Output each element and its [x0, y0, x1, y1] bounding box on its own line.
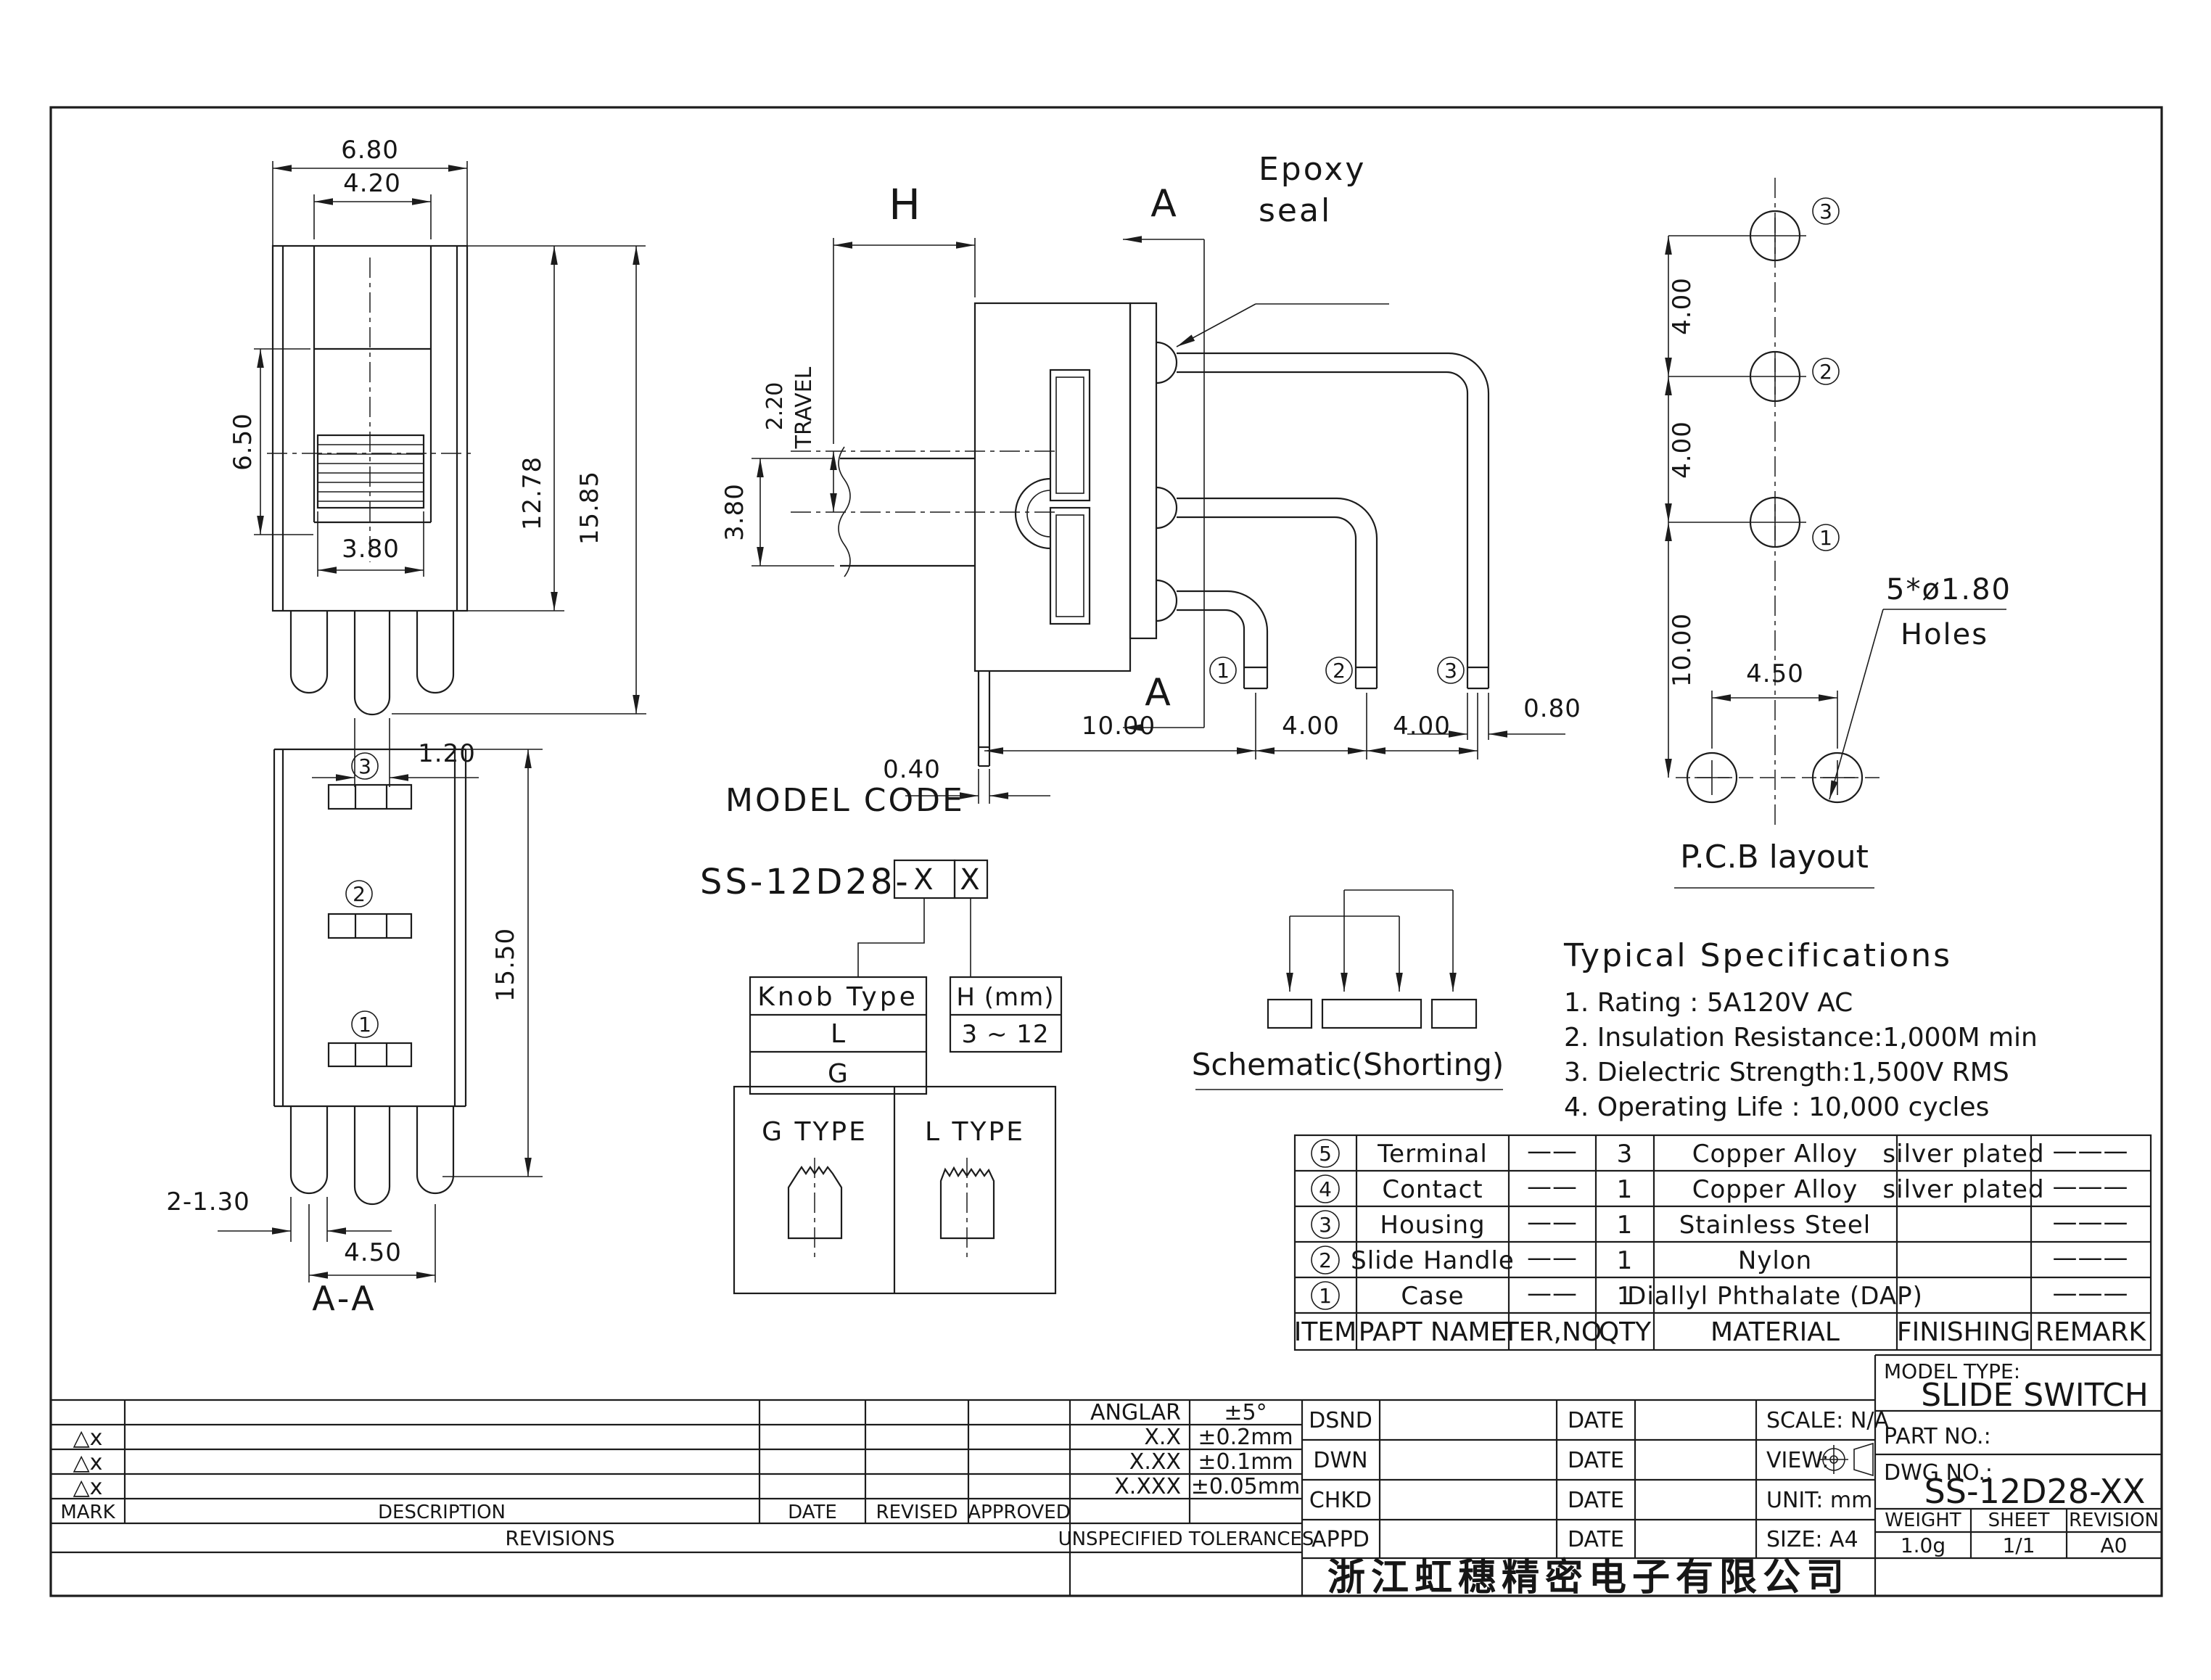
- unit-value: UNIT: mm: [1766, 1488, 1872, 1513]
- date-label-1: DATE: [1568, 1408, 1624, 1433]
- dim-side-h: H: [889, 180, 921, 229]
- bom-name-3: Housing: [1380, 1211, 1485, 1240]
- bom-item-3: 3: [1319, 1213, 1332, 1237]
- model-type-value: SLIDE SWITCH: [1921, 1377, 2149, 1414]
- specs-block: Typical Specifications 1. Rating : 5A120…: [1563, 937, 2038, 1122]
- view-label: VIEW:: [1766, 1448, 1829, 1473]
- bom-ter-3: ——: [1527, 1208, 1578, 1237]
- rev-header-date: DATE: [788, 1502, 837, 1523]
- bom-mat-1: Diallyl Phthalate (DAP): [1627, 1282, 1923, 1311]
- role-dwn: DWN: [1313, 1448, 1367, 1473]
- dim-sec-pitch: 4.50: [344, 1238, 402, 1267]
- spec-item-4: 4. Operating Life : 10,000 cycles: [1564, 1092, 1989, 1122]
- side-plate: [1130, 303, 1156, 638]
- date-label-3: DATE: [1568, 1488, 1624, 1513]
- h-table-header: H (mm): [956, 983, 1054, 1012]
- balloon-terminal-2: 2: [1333, 659, 1346, 683]
- bom-item-1: 1: [1319, 1284, 1332, 1308]
- model-code-title: MODEL CODE: [725, 782, 965, 819]
- dim-side-shaft: 3.80: [720, 483, 749, 541]
- role-appd: APPD: [1312, 1527, 1370, 1552]
- dim-side-travel: 2.20: [762, 382, 788, 431]
- side-view: H 2.20 TRAVEL 3.80 A A Epoxy seal 0.40 1…: [720, 151, 1581, 804]
- bom-rem-3: ———: [2053, 1208, 2129, 1237]
- tol-value-xxxx: ±0.05mm: [1191, 1474, 1300, 1499]
- tol-value-xx: ±0.2mm: [1198, 1425, 1293, 1450]
- bom-rem-4: ———: [2053, 1172, 2129, 1201]
- bom-name-1: Case: [1401, 1282, 1464, 1311]
- dim-pcb-pitch2: 4.00: [1668, 421, 1697, 479]
- tol-value-anglar: ±5°: [1224, 1400, 1267, 1425]
- bom-mat-5: Copper Alloy: [1692, 1140, 1858, 1169]
- dim-front-knob-height: 6.50: [228, 413, 258, 471]
- bom-name-4: Contact: [1382, 1175, 1483, 1204]
- bom-ter-2: ——: [1527, 1243, 1578, 1272]
- bom-mat-2: Nylon: [1738, 1246, 1812, 1275]
- dim-side-offset: 10.00: [1082, 712, 1156, 741]
- balloon-sec-3: 3: [358, 754, 371, 778]
- rev-header-description: DESCRIPTION: [378, 1502, 506, 1523]
- dim-front-body-height: 12.78: [518, 456, 547, 530]
- drawing-canvas: 6.80 4.20 6.50 3.80 12.78 15.85 1.20: [0, 0, 2211, 1680]
- bom-name-5: Terminal: [1377, 1140, 1488, 1169]
- schematic-caption: Schematic(Shorting): [1192, 1047, 1504, 1082]
- tol-label-anglar: ANGLAR: [1090, 1400, 1181, 1425]
- bom-mat-3: Stainless Steel: [1679, 1211, 1872, 1240]
- bom-qty-3: 1: [1617, 1211, 1634, 1240]
- dim-front-outer-width: 6.80: [341, 136, 399, 165]
- date-label-2: DATE: [1568, 1448, 1624, 1473]
- tol-value-xxx: ±0.1mm: [1198, 1449, 1293, 1475]
- section-a-bottom: A: [1145, 671, 1171, 715]
- schematic-figure: Schematic(Shorting): [1192, 890, 1504, 1090]
- balloon-sec-1: 1: [358, 1013, 371, 1037]
- drawing-sheet: 6.80 4.20 6.50 3.80 12.78 15.85 1.20: [0, 0, 2211, 1680]
- spec-item-1: 1. Rating : 5A120V AC: [1564, 988, 1853, 1018]
- label-travel: TRAVEL: [791, 366, 817, 449]
- dim-front-knob-width: 3.80: [342, 535, 400, 564]
- dim-side-pitch1: 4.00: [1282, 712, 1340, 741]
- bom-header-ter: TER,NO: [1502, 1317, 1602, 1347]
- model-code-x1: X: [913, 863, 934, 897]
- size-value: SIZE: A4: [1766, 1527, 1858, 1552]
- bom-table: 5 Terminal —— 3 Copper Alloy silver plat…: [1294, 1135, 2151, 1350]
- scale-value: SCALE: N/A: [1766, 1408, 1889, 1433]
- bom-ter-1: ——: [1527, 1279, 1578, 1308]
- bom-item-4: 4: [1319, 1177, 1332, 1201]
- revision-mark-1: △x: [73, 1425, 103, 1451]
- tol-label-xxx: X.XX: [1129, 1449, 1181, 1475]
- rev-header-approved: APPROVED: [968, 1502, 1070, 1523]
- dim-side-terminal-width: 0.80: [1523, 694, 1581, 723]
- dwg-no-value: SS-12D28-XX: [1924, 1472, 2146, 1511]
- g-type-label: G TYPE: [762, 1117, 868, 1147]
- section-caption: A-A: [312, 1279, 377, 1318]
- side-body: [975, 303, 1130, 671]
- dim-front-window-width: 4.20: [343, 169, 401, 198]
- side-contact: [1016, 479, 1050, 548]
- balloon-pcb-2: 2: [1819, 360, 1832, 384]
- rev-header-mark: MARK: [60, 1502, 115, 1523]
- balloon-terminal-1: 1: [1216, 659, 1230, 683]
- knob-type-l: L: [831, 1019, 845, 1049]
- bom-header-name: PAPT NAME: [1359, 1317, 1507, 1347]
- section-a-top: A: [1150, 182, 1177, 226]
- l-type-label: L TYPE: [925, 1117, 1025, 1147]
- revision-value: A0: [2101, 1533, 2128, 1557]
- tol-label-xxxx: X.XXX: [1114, 1474, 1181, 1499]
- label-epoxy-1: Epoxy: [1259, 151, 1366, 188]
- bom-header-finishing: FINISHING: [1897, 1317, 2030, 1347]
- knob-type-g: G: [828, 1059, 848, 1089]
- balloon-pcb-3: 3: [1819, 199, 1832, 223]
- pcb-caption: P.C.B layout: [1680, 839, 1869, 876]
- bom-header-material: MATERIAL: [1710, 1317, 1840, 1347]
- pcb-layout-view: 4.00 4.00 10.00 3 2 1 4.50 5*ø1.80 Holes…: [1668, 178, 2012, 888]
- section-view: 3 2 1 15.50 2-1.30 4.50 A-A: [166, 749, 543, 1318]
- label-epoxy-2: seal: [1259, 192, 1332, 229]
- bom-ter-5: ——: [1527, 1137, 1578, 1166]
- dim-sec-pin: 2-1.30: [166, 1187, 250, 1216]
- dim-pcb-offset: 10.00: [1668, 613, 1697, 687]
- front-knob: [318, 435, 424, 508]
- front-view: 6.80 4.20 6.50 3.80 12.78 15.85 1.20: [228, 136, 646, 787]
- h-table-range: 3 ~ 12: [962, 1020, 1050, 1049]
- model-code-block: MODEL CODE SS-12D28- X X Knob Type L G H…: [700, 782, 1061, 1094]
- title-block: △x △x △x MARK DESCRIPTION DATE REVISED A…: [51, 1355, 2162, 1599]
- dim-sec-height: 15.50: [491, 928, 520, 1002]
- date-label-4: DATE: [1568, 1527, 1624, 1552]
- front-pin-right: [417, 611, 453, 693]
- bom-header-item: ITEM: [1294, 1317, 1356, 1347]
- spec-item-2: 2. Insulation Resistance:1,000M min: [1564, 1023, 2038, 1053]
- bom-header-qty: QTY: [1599, 1317, 1652, 1347]
- weight-label: WEIGHT: [1885, 1510, 1961, 1531]
- dim-front-total-height: 15.85: [575, 471, 604, 545]
- revision-mark-3: △x: [73, 1475, 103, 1500]
- bom-item-2: 2: [1319, 1248, 1332, 1272]
- revisions-caption: REVISIONS: [505, 1526, 614, 1550]
- dim-pcb-bottom-pitch: 4.50: [1746, 659, 1804, 688]
- bom-qty-2: 1: [1617, 1246, 1634, 1275]
- bom-name-2: Slide Handle: [1351, 1246, 1515, 1275]
- sheet-value: 1/1: [2002, 1533, 2035, 1557]
- bom-ter-4: ——: [1527, 1172, 1578, 1201]
- balloon-terminal-3: 3: [1444, 659, 1457, 683]
- model-code-x2: X: [960, 863, 981, 897]
- tolerances-caption: UNSPECIFIED TOLERANCES: [1058, 1528, 1314, 1550]
- balloon-pcb-1: 1: [1819, 526, 1832, 550]
- dim-side-pin-width: 0.40: [883, 755, 941, 784]
- dim-front-pin-width: 1.20: [418, 739, 476, 768]
- front-pin-left: [291, 611, 327, 693]
- bom-header-remark: REMARK: [2035, 1317, 2146, 1347]
- dim-side-pitch2: 4.00: [1393, 712, 1451, 741]
- bom-rem-1: ———: [2053, 1279, 2129, 1308]
- knob-type-figures: G TYPE L TYPE: [734, 1087, 1055, 1293]
- bom-rem-5: ———: [2053, 1137, 2129, 1166]
- note-holes-word: Holes: [1901, 618, 1988, 651]
- bom-qty-4: 1: [1617, 1175, 1634, 1204]
- role-chkd: CHKD: [1309, 1488, 1372, 1513]
- weight-value: 1.0g: [1901, 1533, 1946, 1557]
- bom-rem-2: ———: [2053, 1243, 2129, 1272]
- dim-pcb-pitch1: 4.00: [1668, 277, 1697, 335]
- revision-label: REVISION: [2069, 1510, 2159, 1531]
- company-name: 浙江虹穗精密电子有限公司: [1327, 1556, 1850, 1599]
- note-holes-size: 5*ø1.80: [1886, 573, 2012, 606]
- specs-title: Typical Specifications: [1563, 937, 1952, 974]
- sheet-label: SHEET: [1988, 1510, 2050, 1531]
- bom-mat-4: Copper Alloy: [1692, 1175, 1858, 1204]
- rev-header-revised: REVISED: [876, 1502, 958, 1523]
- role-dsnd: DSND: [1309, 1408, 1372, 1433]
- spec-item-3: 3. Dielectric Strength:1,500V RMS: [1564, 1058, 2009, 1087]
- model-code-prefix: SS-12D28-: [700, 862, 911, 902]
- side-terminals: [1177, 353, 1489, 688]
- bom-fin-5: silver plated: [1882, 1140, 2044, 1169]
- part-no-label: PART NO.:: [1884, 1424, 1991, 1449]
- knob-type-header: Knob Type: [757, 982, 918, 1012]
- front-pin-middle: [355, 611, 390, 715]
- bom-fin-4: silver plated: [1882, 1175, 2044, 1204]
- balloon-sec-2: 2: [353, 882, 366, 906]
- bom-item-5: 5: [1319, 1142, 1332, 1166]
- revision-mark-2: △x: [73, 1450, 103, 1475]
- tol-label-xx: X.X: [1144, 1425, 1181, 1450]
- bom-qty-5: 3: [1617, 1140, 1634, 1169]
